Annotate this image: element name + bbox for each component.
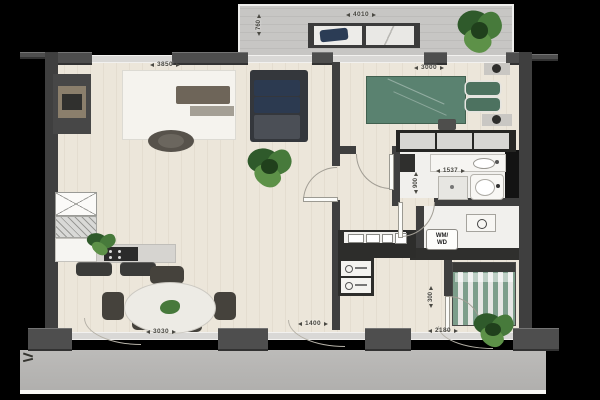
wall-pier [312, 52, 333, 65]
kitchen-plant [86, 232, 116, 254]
shower-drain [450, 185, 454, 189]
bedroom2-plant [472, 312, 514, 346]
oven [341, 261, 371, 276]
wardrobe-door [400, 133, 435, 149]
dim-value: 3000 [421, 65, 437, 72]
door-swing-terrace-left [84, 318, 141, 345]
dim-value: 1537 [443, 168, 458, 174]
washer-dryer-tag: WM/ WD [426, 229, 458, 250]
appliance-tower [338, 258, 374, 296]
wardrobe [396, 130, 516, 152]
marking-line [23, 358, 33, 362]
coffee-table [176, 86, 230, 104]
wall-living-bedroom [332, 62, 340, 166]
balcony-door-glass [333, 55, 424, 63]
wall-pier [365, 328, 411, 351]
dim-value: 4010 [353, 12, 369, 19]
wardrobe-door [474, 133, 509, 149]
toilet-button [496, 184, 500, 188]
toilet-bowl [475, 179, 495, 196]
bathroom-cabinet [400, 154, 415, 172]
washer-dryer-label-line2: WD [437, 240, 447, 247]
leaf [471, 22, 488, 39]
dim-balcony-width: 4010 [346, 12, 376, 19]
dim-dining-width: 3030 [146, 329, 176, 336]
wall-pier [28, 328, 72, 351]
dim-value: 2180 [435, 328, 451, 335]
living-plant [246, 146, 292, 186]
gallery-entry-marking [23, 353, 35, 363]
pouf [148, 130, 194, 152]
microwave-handle [355, 284, 367, 286]
door-bathroom [398, 202, 403, 238]
dim-value: 3030 [153, 329, 169, 336]
sink [473, 158, 495, 169]
double-bed [366, 76, 466, 124]
bench-cushion [366, 26, 414, 45]
headboard [453, 263, 515, 272]
balcony-plant [456, 8, 502, 52]
dim-balcony-depth: 760 [256, 14, 262, 36]
boiler-dial [477, 219, 487, 229]
microwave [341, 278, 371, 293]
oven-dial [345, 265, 353, 273]
balcony-bench [308, 23, 420, 48]
door-living [303, 197, 338, 202]
burner [109, 256, 112, 259]
dim-bathroom-width: 1537 [436, 168, 465, 174]
dim-value: 760 [256, 20, 262, 30]
washer-dryer-label-line1: WM/ [436, 233, 448, 240]
counter-item [382, 234, 393, 243]
dim-entry-width: 1400 [298, 321, 328, 328]
dining-chair [102, 292, 124, 320]
tv-cabinet [53, 74, 91, 134]
wall-bedroom2-top [410, 248, 519, 260]
pillow [466, 98, 500, 111]
wall-stub-right-top [532, 54, 558, 61]
dim-value: 3850 [157, 62, 173, 69]
wardrobe-door [437, 133, 472, 149]
fridge-unit [55, 192, 97, 216]
dining-chair [214, 292, 236, 320]
door-bedroom [389, 154, 394, 190]
wall-bedroom2-left [444, 260, 452, 296]
sofa-seat [254, 115, 300, 139]
dim-shower-width: 900 [413, 172, 419, 194]
dim-value: 900 [413, 178, 419, 188]
dim-closet-depth: 300 [428, 286, 434, 308]
table-centerpiece [160, 300, 180, 314]
dim-bedroom2-width: 2180 [428, 328, 458, 335]
bed-sheet [455, 273, 513, 282]
toilet [470, 174, 504, 200]
pillow [466, 82, 500, 95]
faucet [495, 160, 499, 164]
counter-hob [366, 234, 380, 243]
sofa [250, 70, 308, 142]
burner [118, 250, 121, 253]
marking-line [23, 353, 33, 358]
balcony-door-glass [248, 55, 312, 63]
bedside-lamp [492, 115, 501, 124]
sofa-cushion [254, 80, 300, 96]
sofa-cushion [254, 97, 300, 113]
wall-stub-left [20, 52, 45, 59]
bedside-lamp [492, 64, 501, 73]
leaf [261, 159, 278, 174]
window-bedroom [447, 55, 506, 63]
kitchen-sink [348, 234, 364, 243]
dim-value: 300 [428, 292, 434, 302]
dim-value: 1400 [305, 321, 321, 328]
wall-pier [513, 328, 559, 351]
service-shaft [505, 150, 519, 200]
wall-bedroom-hall [340, 146, 356, 154]
door-bedroom2 [445, 296, 450, 331]
wall-pier [172, 52, 248, 65]
floor-plan-canvas: WM/ WD 4010 760 3850 3000 1537 900 3030 [0, 0, 600, 400]
burner [118, 256, 121, 259]
dim-bedroom-width: 3000 [414, 65, 444, 72]
oven-handle [355, 267, 367, 269]
area-rug [122, 70, 236, 140]
microwave-dial [345, 282, 353, 290]
gallery-walkway [20, 350, 546, 392]
shower-tray [438, 176, 468, 200]
gallery-edge [20, 390, 546, 394]
boiler-unit [466, 214, 496, 232]
bedroom-stool [438, 119, 456, 130]
tv-screen [62, 94, 82, 110]
pouf-top [158, 134, 184, 148]
wall-pier [218, 328, 268, 351]
duvet-fold [393, 91, 446, 116]
dim-living-width: 3850 [150, 62, 180, 69]
bar-stool [76, 262, 112, 276]
side-table [190, 106, 234, 116]
wall-right [519, 52, 532, 335]
